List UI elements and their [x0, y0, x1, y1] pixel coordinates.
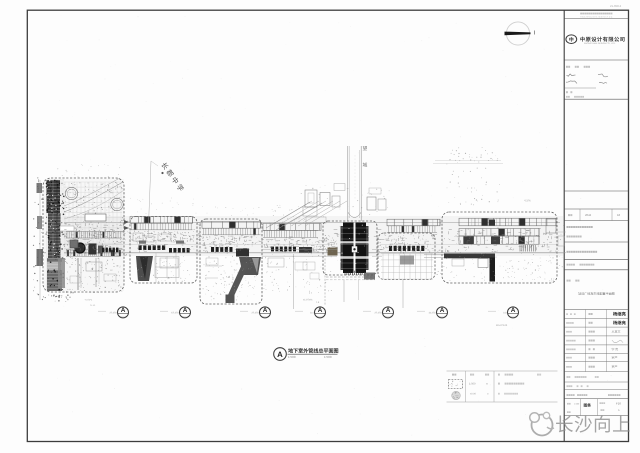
svg-text:A: A: [511, 307, 516, 314]
svg-text:±0.00: ±0.00: [470, 393, 477, 396]
svg-text:A: A: [318, 307, 323, 314]
svg-text:27.370: 27.370: [109, 312, 117, 315]
svg-text:m: m: [486, 383, 488, 386]
svg-text:m: m: [487, 393, 489, 396]
svg-text:A: A: [121, 307, 126, 314]
svg-text:A: A: [263, 307, 268, 314]
svg-text:10.27b: 10.27b: [428, 312, 436, 315]
svg-text:F16: F16: [616, 402, 621, 406]
svg-text:K7.370: K7.370: [171, 312, 179, 315]
svg-text:A: A: [277, 350, 283, 359]
svg-text:1:500: 1:500: [324, 355, 332, 359]
svg-text:2042: 2042: [585, 213, 592, 217]
svg-text:1:500: 1:500: [469, 383, 476, 386]
svg-text:21-058-2: 21-058-2: [610, 4, 622, 8]
svg-text:K0+474.00: K0+474.00: [496, 324, 508, 327]
svg-text:H N Z J E N G. D E S I G N: H N Z J E N G. D E S I G N I N S T. C O.: [580, 15, 613, 18]
svg-text:A: A: [440, 307, 445, 314]
svg-text:24.50: 24.50: [90, 304, 96, 307]
svg-text:ZHONGYUAN DESIGN CO., LTD.: ZHONGYUAN DESIGN CO., LTD.: [584, 42, 616, 45]
svg-text:1:500: 1:500: [574, 403, 580, 406]
svg-text:-7.0 kPa: -7.0 kPa: [84, 299, 93, 302]
svg-text:10-01: 10-01: [439, 315, 445, 318]
svg-text:10-01: 10-01: [262, 315, 268, 318]
svg-text:A: A: [386, 307, 391, 314]
svg-text:10-01: 10-01: [385, 315, 391, 318]
svg-text:A: A: [183, 307, 188, 314]
svg-text:1:500: 1:500: [288, 355, 296, 359]
svg-text:10-01: 10-01: [317, 315, 323, 318]
svg-text:4.5%: 4.5%: [524, 199, 531, 203]
svg-text:10-01: 10-01: [182, 315, 188, 318]
svg-text:18: 18: [617, 213, 621, 217]
svg-text:±1.97±%: ±1.97±%: [303, 299, 313, 302]
svg-text:27.370: 27.370: [374, 312, 382, 315]
svg-text:10-01: 10-01: [510, 315, 516, 318]
svg-text:27.370: 27.370: [251, 312, 259, 315]
svg-text:10-01: 10-01: [120, 315, 126, 318]
